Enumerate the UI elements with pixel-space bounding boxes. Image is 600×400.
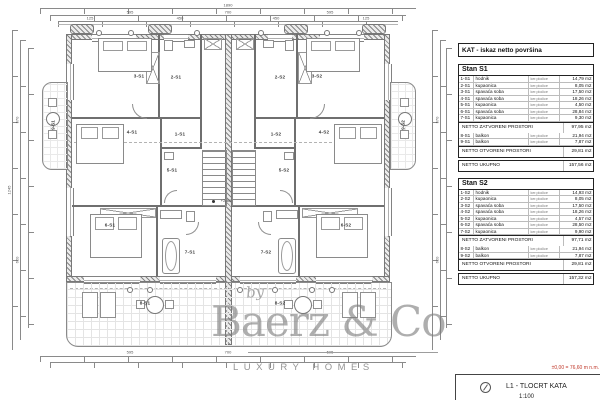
bathtub-symbol (278, 238, 296, 274)
apartment-section: Stan S11-S1hodnikker.pločice14,79 m22-S1… (458, 64, 594, 172)
room-label-2s1: 2-S1 (171, 75, 182, 80)
dimension-label: 450 (273, 16, 280, 21)
interior-wall (160, 147, 202, 149)
stairs (232, 150, 256, 206)
dimension-label: 620 (15, 257, 20, 264)
closed-total-row-label: NETTO ZATVORENI PROSTORI (459, 236, 563, 246)
table-row: 9-S1balkonker.pločice7,87 m2 (459, 139, 593, 146)
room-finish-cell: ker.pločice (529, 139, 560, 146)
bed-symbol (334, 124, 382, 164)
dimension-label: 450 (177, 16, 184, 21)
chair-symbol (400, 130, 409, 139)
dimension-label: 620 (435, 257, 440, 264)
wall-pier (284, 24, 308, 34)
dimension-label: 570 (435, 117, 440, 124)
open-total-row-area: 29,81 m2 (563, 260, 593, 270)
table-row: 7-S1kupaonicaker.pločice9,30 m2 (459, 115, 593, 122)
drawing-title: L1 - TLOCRT KATA (506, 383, 567, 390)
apartment-box: Stan S11-S1hodnikker.pločice14,79 m22-S1… (458, 64, 594, 158)
sink-symbol (164, 152, 174, 160)
chair-symbol (165, 300, 174, 309)
room-area-cell: 7,87 m2 (560, 139, 593, 146)
grand-total-row-area: 157,56 m2 (563, 161, 593, 171)
sink-symbol (184, 40, 195, 48)
interior-wall (156, 206, 158, 276)
room-finish-cell: ker.pločice (529, 253, 560, 260)
open-total-row-label: NETTO OTVORENI PROSTORI (459, 147, 563, 157)
room-area-cell: 9,90 m2 (560, 229, 593, 236)
closed-total-row: NETTO ZATVORENI PROSTORI97,71 m2 (459, 235, 593, 246)
door-arc (164, 190, 177, 203)
closed-total-row-area: 97,71 m2 (563, 236, 593, 246)
grand-total-row: NETTO UKUPNO157,32 m2 (458, 273, 594, 285)
interior-wall (254, 147, 296, 149)
open-total-row-label: NETTO OTVORENI PROSTORI (459, 260, 563, 270)
marker-circle (356, 30, 362, 36)
dimension-label: 595 (327, 10, 334, 15)
room-label-7s2: 7-S2 (261, 250, 272, 255)
marker-circle (272, 287, 278, 293)
room-label-9s2: 9-S2 (401, 120, 406, 130)
table-sections: Stan S11-S1hodnikker.pločice14,79 m22-S1… (458, 64, 594, 285)
interior-wall (256, 117, 384, 119)
room-label-3s2: 3-S2 (312, 74, 323, 79)
room-name-cell: balkon (474, 139, 529, 146)
dimension-label: 700 (225, 350, 232, 355)
bathtub-symbol (162, 238, 180, 274)
door-arc (186, 222, 199, 235)
room-label-2s2: 2-S2 (275, 75, 286, 80)
marker-circle (127, 287, 133, 293)
closed-total-row: NETTO ZATVORENI PROSTORI97,95 m2 (459, 122, 593, 133)
interior-wall (298, 206, 300, 276)
room-label-9s1: 9-S1 (51, 120, 56, 130)
room-area-cell: 9,30 m2 (560, 115, 593, 122)
eaves-line (58, 24, 398, 25)
sink-symbol (263, 40, 274, 48)
room-label-4s1: 4-S1 (127, 130, 138, 135)
room-code-cell: 7-S1 (459, 115, 474, 122)
dimension-label: 595 (127, 10, 134, 15)
table-row: 9-S2balkonker.pločice7,87 m2 (459, 253, 593, 260)
bed-symbol (316, 214, 368, 258)
interior-wall (72, 117, 200, 119)
marker-circle (309, 287, 315, 293)
open-total-row: NETTO OTVORENI PROSTORI29,81 m2 (459, 146, 593, 157)
dimension-label: 1245 (7, 186, 12, 195)
room-finish-cell: ker.pločice (529, 229, 560, 236)
bed-symbol (90, 214, 142, 258)
marker-circle (96, 30, 102, 36)
chair-symbol (48, 98, 57, 107)
grand-total-row: NETTO UKUPNO157,56 m2 (458, 160, 594, 172)
dimension-label: 700 (225, 10, 232, 15)
marker-circle (128, 30, 134, 36)
dimension-line (28, 48, 34, 328)
grand-total-row-label: NETTO UKUPNO (459, 161, 563, 171)
marker-circle (324, 30, 330, 36)
dimension-label: 595 (127, 350, 134, 355)
closet-symbol (236, 38, 254, 50)
marker-circle (147, 287, 153, 293)
toilet-symbol (186, 211, 195, 222)
dimension-line (20, 40, 26, 340)
room-label-1s1: 1-S1 (175, 132, 186, 137)
room-label-3s1: 3-S1 (134, 74, 145, 79)
drawing-scale: 1:100 (519, 394, 534, 400)
marker-circle (258, 30, 264, 36)
chair-symbol (48, 130, 57, 139)
table-title: KAT - iskaz netto površina (458, 43, 594, 57)
section-header: Stan S2 (459, 179, 593, 190)
vanity-symbol (160, 210, 182, 219)
room-code-cell: 9-S2 (459, 253, 474, 260)
room-label-7s1: 7-S1 (185, 250, 196, 255)
room-label-4s2: 4-S2 (319, 130, 330, 135)
lounger-symbol (82, 292, 98, 318)
door-arc (280, 190, 293, 203)
watermark-brand: Baerz & Co (211, 297, 445, 346)
open-total-row-area: 29,81 m2 (563, 147, 593, 157)
wall-pier (70, 24, 94, 34)
dimension-label: 1890 (224, 3, 233, 8)
room-label-5s1: 5-S1 (167, 168, 178, 173)
grand-total-row-label: NETTO UKUPNO (459, 274, 563, 284)
section-header: Stan S1 (459, 65, 593, 76)
chair-symbol (400, 98, 409, 107)
room-name-cell: kupaonica (474, 115, 529, 122)
window (66, 188, 74, 236)
dimension-label: 125 (363, 16, 370, 21)
toilet-symbol (263, 211, 272, 222)
stairs (202, 150, 227, 206)
title-block: L1 - TLOCRT KATA 1:100 (455, 374, 600, 400)
bed-symbol (306, 38, 360, 72)
marker-circle (237, 287, 243, 293)
interior-wall (200, 34, 202, 148)
sink-symbol (284, 152, 294, 160)
drawing-sheet: 1890 595 700 595 125 450 450 125 1245 57… (0, 0, 600, 400)
room-area-cell: 7,87 m2 (560, 253, 593, 260)
area-table: KAT - iskaz netto površina Stan S11-S1ho… (458, 43, 594, 291)
room-name-cell: balkon (474, 253, 529, 260)
vanity-symbol (276, 210, 298, 219)
lounger-symbol (100, 292, 116, 318)
interior-wall (160, 118, 162, 206)
interior-wall (294, 118, 296, 206)
wall-pier (148, 24, 172, 34)
marker-circle (194, 30, 200, 36)
room-name-cell: kupaonica (474, 229, 529, 236)
room-label-5s2: 5-S2 (279, 168, 290, 173)
wall-pier (362, 24, 386, 34)
interior-wall (254, 34, 256, 148)
bed-symbol (76, 124, 124, 164)
closed-total-row-area: 97,95 m2 (563, 123, 593, 133)
apartment-box: Stan S21-S2hodnikker.pločice14,93 m22-S2… (458, 178, 594, 272)
closed-total-row-label: NETTO ZATVORENI PROSTORI (459, 123, 563, 133)
dimension-line (446, 48, 452, 328)
bed-symbol (98, 38, 152, 72)
closet-symbol (204, 38, 222, 50)
room-label-6s1: 6-S1 (105, 223, 116, 228)
table-row: 7-S2kupaonicaker.pločice9,90 m2 (459, 229, 593, 236)
dimension-label: 125 (87, 16, 94, 21)
room-finish-cell: ker.pločice (529, 115, 560, 122)
grand-total-row-area: 157,32 m2 (563, 274, 593, 284)
apartment-section: Stan S21-S2hodnikker.pločice14,93 m22-S2… (458, 178, 594, 286)
level-marker-icon (212, 200, 215, 203)
room-label-6s2: 6-S2 (341, 223, 352, 228)
level-note: ±0,00 = 76,60 m n.m. (552, 365, 599, 371)
marker-circle (329, 287, 335, 293)
open-total-row: NETTO OTVORENI PROSTORI29,81 m2 (459, 259, 593, 270)
north-arrow-icon (480, 382, 491, 393)
door-arc (258, 222, 271, 235)
room-code-cell: 7-S2 (459, 229, 474, 236)
toilet-symbol (164, 40, 173, 51)
level-marker-label: +2,80 (221, 199, 232, 203)
toilet-symbol (285, 40, 294, 51)
window (384, 188, 392, 236)
dimension-line (12, 30, 18, 350)
watermark-divider (248, 352, 438, 353)
dimension-label: 570 (15, 117, 20, 124)
room-label-8s1: 8-S1 (140, 301, 151, 306)
watermark-tagline: LUXURY HOMES (233, 362, 375, 373)
room-code-cell: 9-S1 (459, 139, 474, 146)
room-label-1s2: 1-S2 (271, 132, 282, 137)
